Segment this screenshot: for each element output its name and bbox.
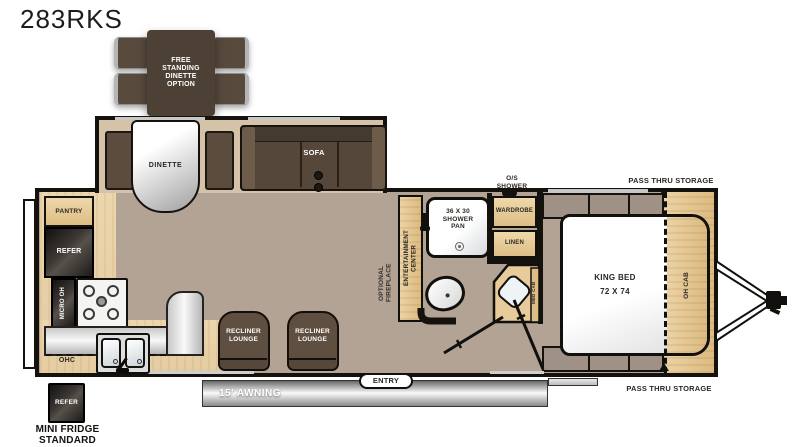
burner-icon	[83, 308, 95, 320]
ohc-label: OHC	[52, 357, 82, 365]
pass-thru-storage-label-top: PASS THRU STORAGE	[612, 177, 730, 186]
kitchen-sink	[96, 333, 150, 374]
recliner-lounge: RECLINER LOUNGE	[218, 311, 270, 371]
drain-icon	[455, 242, 464, 251]
range-stove	[76, 278, 128, 328]
shower-pan-label: 36 X 30 SHOWER PAN	[432, 208, 484, 231]
os-shower-icon	[502, 191, 517, 197]
wall-trim	[490, 371, 544, 375]
oh-cab: OH CAB	[667, 217, 707, 353]
drain-icon	[137, 359, 142, 364]
pass-thru-dashed-line	[664, 192, 667, 373]
hitch-frame	[716, 299, 770, 341]
entertainment-center-cabinet: ENTERTAINMENT CENTER	[398, 195, 423, 322]
dinette-option-label: FREE STANDING DINETTE OPTION	[162, 57, 200, 90]
kitchen-counter-peninsula	[166, 291, 204, 356]
wall-trim	[548, 189, 648, 193]
refrigerator-label: REFER	[57, 248, 82, 256]
dinette-option-chair	[114, 73, 151, 105]
wardrobe-cabinet: WARDROBE	[492, 196, 537, 228]
recliner-label: RECLINER LOUNGE	[291, 328, 334, 343]
entry-label: ENTRY	[359, 373, 413, 389]
bed-mattress: KING BED 72 X 74	[563, 217, 667, 353]
recliner-footrest	[289, 358, 336, 369]
shower-pan: 36 X 30 SHOWER PAN	[426, 197, 490, 258]
dinette-label: DINETTE	[149, 162, 182, 170]
king-bed-label: KING BED 72 X 74	[594, 271, 636, 298]
awning-label: 15' AWNING	[219, 388, 281, 400]
cupholder-icon	[314, 171, 323, 180]
floorplan-283rks: 283RKS FREE STANDING DINETTE OPTION SOFA…	[0, 0, 800, 447]
pantry-cabinet: PANTRY	[44, 196, 94, 227]
sofa-back	[254, 127, 373, 142]
recliner-lounge: RECLINER LOUNGE	[287, 311, 339, 371]
recliner-label: RECLINER LOUNGE	[222, 328, 265, 343]
os-shower-label: O/S SHOWER	[487, 175, 537, 190]
arrow-icon	[659, 363, 669, 371]
sink-basin	[101, 338, 121, 368]
burner-icon	[83, 285, 95, 297]
pantry-label: PANTRY	[55, 208, 82, 216]
oh-cab-label: OH CAB	[683, 272, 691, 299]
drain-dot	[458, 245, 461, 248]
burner-icon	[107, 285, 119, 297]
dinette-bench	[105, 131, 134, 190]
drain-icon	[113, 359, 118, 364]
page-title: 283RKS	[20, 4, 123, 35]
dinette-option-table: FREE STANDING DINETTE OPTION	[147, 30, 215, 116]
slide-rail	[248, 117, 340, 120]
refrigerator: REFER	[44, 227, 94, 278]
sofa: SOFA	[240, 125, 387, 191]
dinette-option-chair	[114, 37, 151, 69]
cupholder-icon	[314, 183, 323, 192]
arrow-icon	[659, 189, 669, 197]
sofa-armrest	[242, 127, 255, 189]
linen-cabinet: LINEN	[492, 230, 537, 258]
king-bed: KING BED 72 X 74 OH CAB	[560, 214, 710, 356]
burner-icon	[107, 308, 119, 320]
hitch-coupler	[766, 291, 781, 309]
pass-thru-storage-label-bottom: PASS THRU STORAGE	[610, 385, 728, 394]
awning-arm	[548, 378, 598, 386]
sofa-armrest	[372, 127, 385, 189]
dinette-bench	[205, 131, 234, 190]
mini-fridge-label: REFER	[55, 399, 78, 407]
hitch-frame	[716, 261, 770, 303]
dinette-table: DINETTE	[131, 120, 200, 213]
wardrobe-label: WARDROBE	[496, 208, 533, 215]
hitch-coupler	[780, 296, 787, 305]
shower-head-icon	[420, 226, 430, 231]
hitch-handle	[770, 307, 781, 315]
optional-fireplace-label: OPTIONAL FIREPLACE	[378, 232, 396, 334]
mini-fridge-box: REFER	[48, 383, 85, 423]
med-cab-label: MED CAB	[531, 272, 540, 314]
sink-basin	[125, 338, 145, 368]
sofa-label: SOFA	[285, 149, 343, 158]
microwave-label: MICRO OH	[60, 287, 67, 319]
entry-text: ENTRY	[373, 377, 399, 386]
dinette-option-chair	[212, 73, 249, 105]
entertainment-label: ENTERTAINMENT CENTER	[403, 230, 418, 286]
toilet-dot	[445, 293, 450, 298]
burner-icon	[96, 296, 107, 307]
recliner-footrest	[220, 358, 267, 369]
linen-label: LINEN	[505, 240, 524, 247]
mini-fridge-caption: MINI FRIDGE STANDARD	[15, 424, 120, 446]
dinette-option-chair	[212, 37, 249, 69]
microwave-cabinet: MICRO OH	[51, 278, 76, 328]
